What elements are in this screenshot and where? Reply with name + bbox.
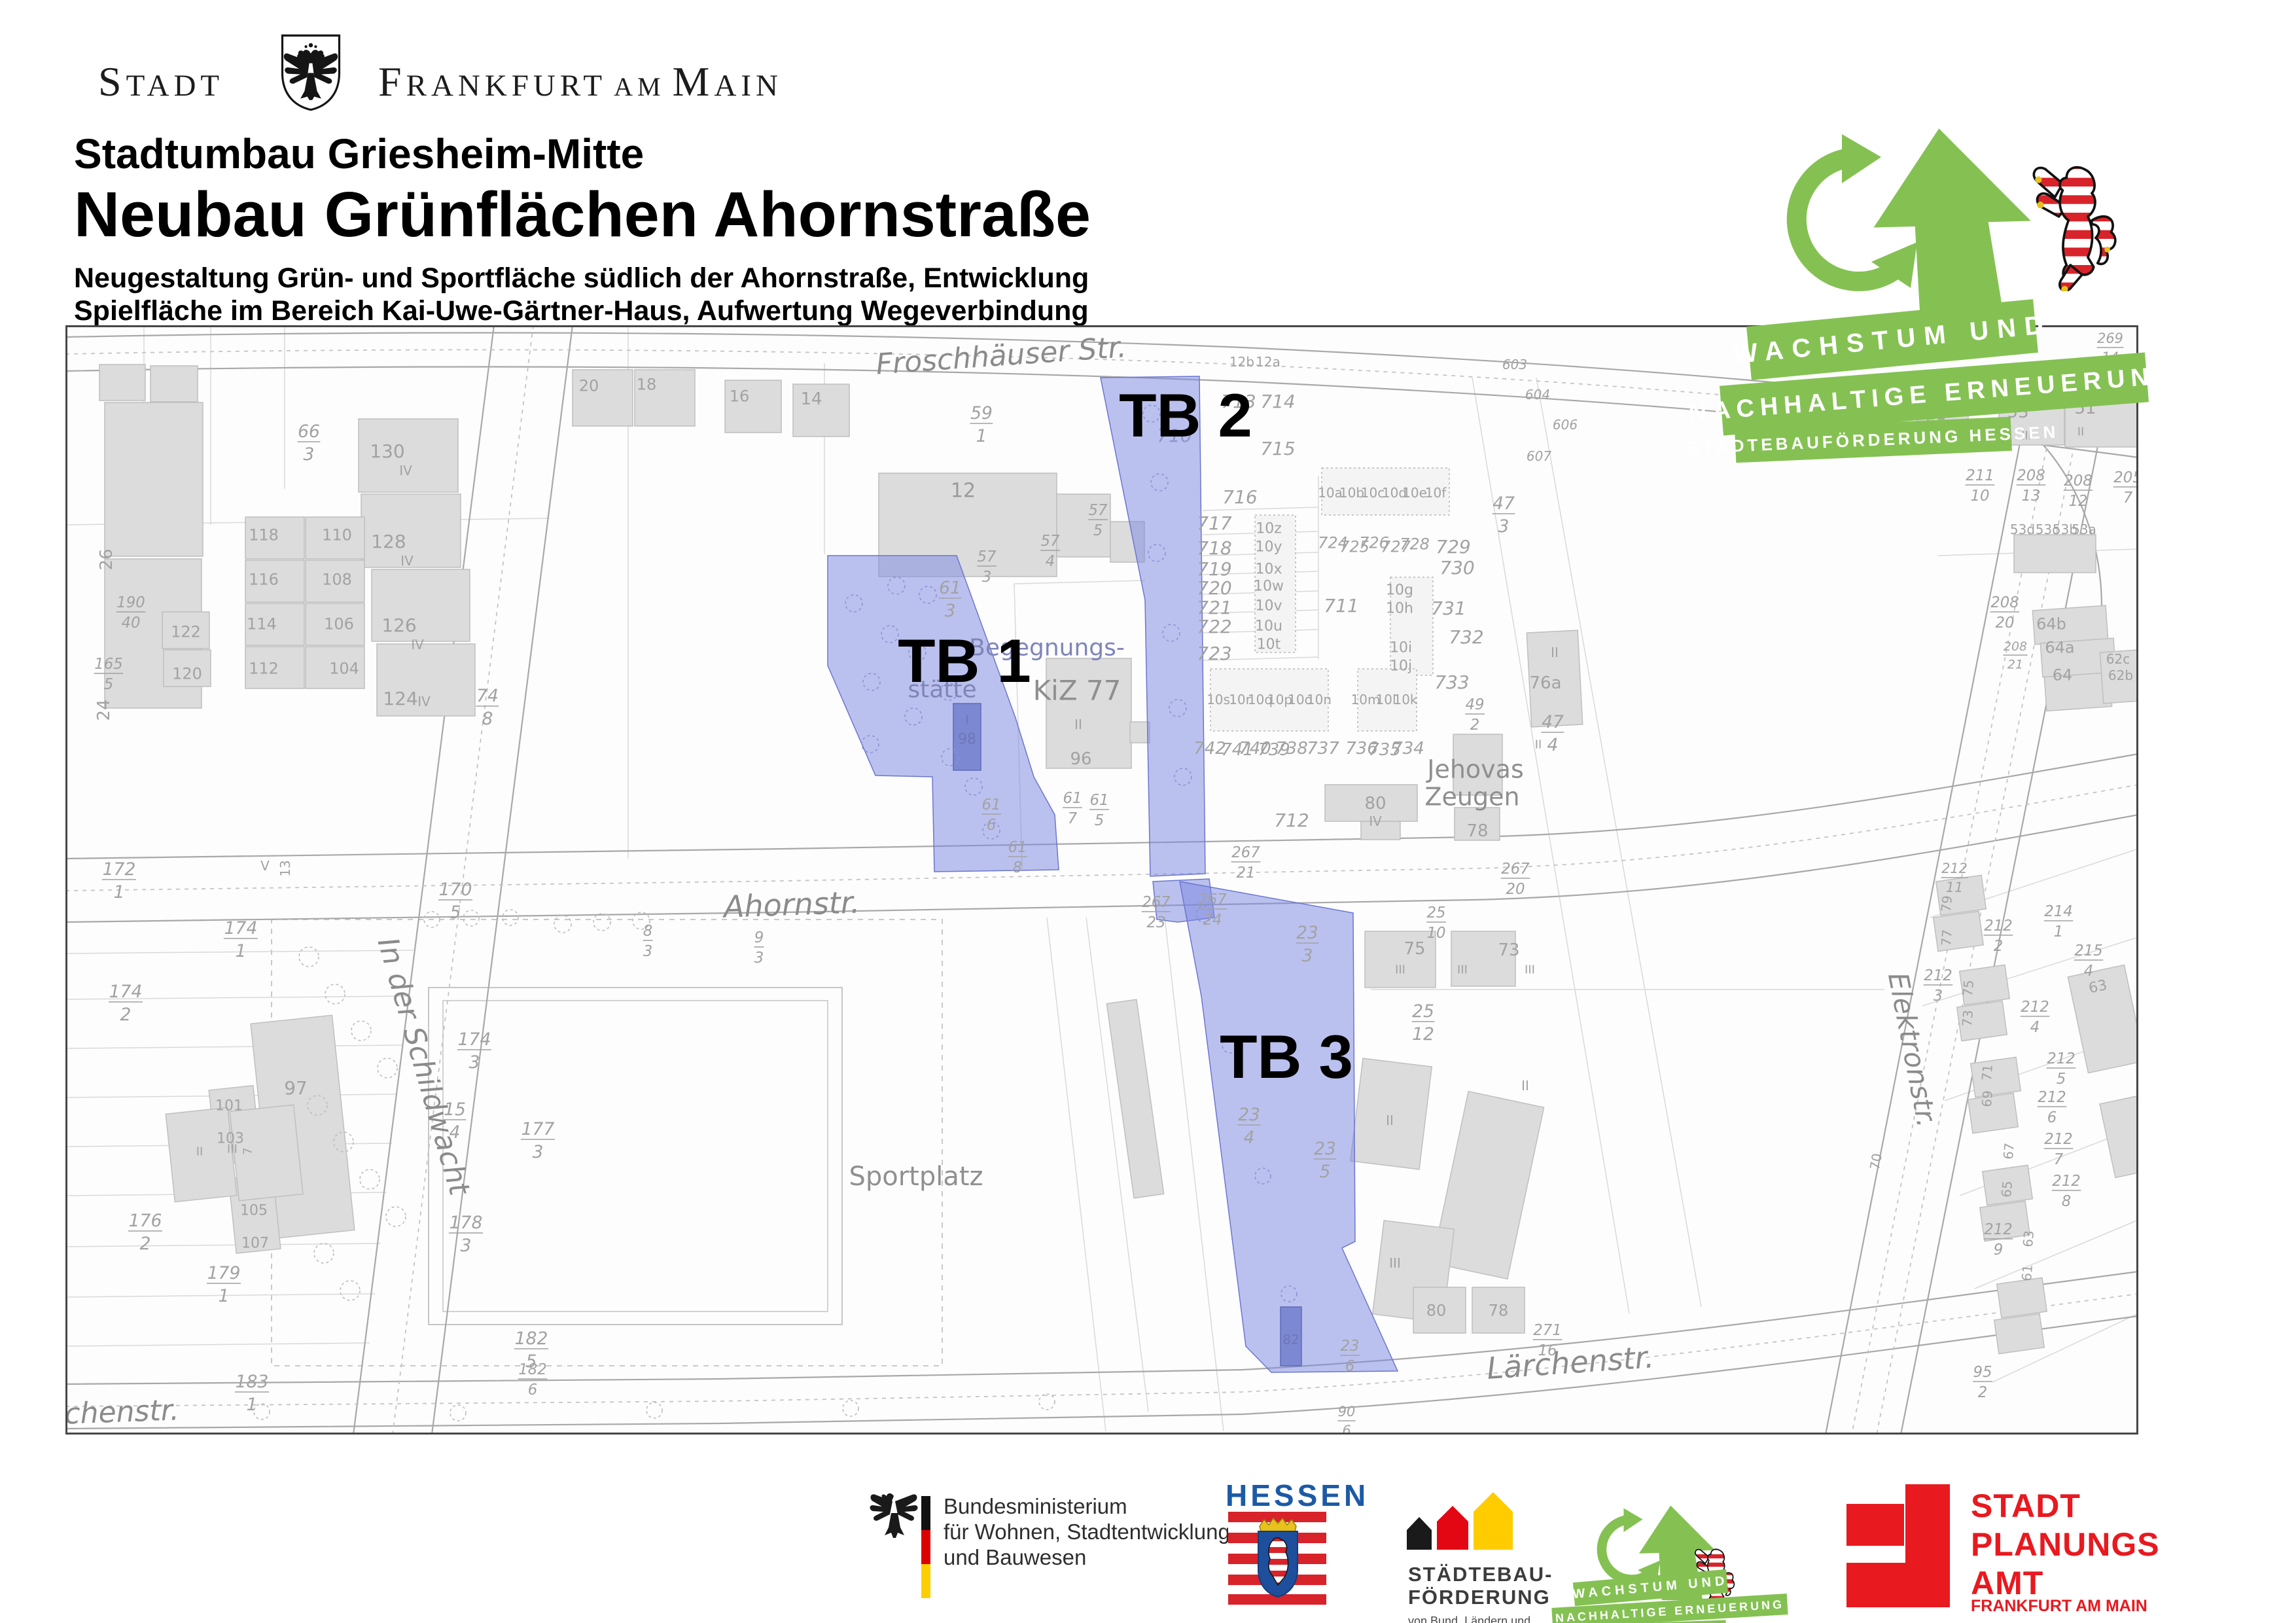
svg-text:3: 3	[982, 569, 992, 586]
svg-text:603: 603	[1502, 357, 1527, 372]
map-label-78: 78	[1489, 1301, 1509, 1319]
svg-text:130: 130	[370, 440, 404, 462]
svg-text:16: 16	[730, 387, 750, 405]
svg-text:717: 717	[1197, 512, 1232, 534]
svg-text:172: 172	[103, 859, 136, 880]
svg-text:IV: IV	[1369, 813, 1382, 829]
svg-text:107: 107	[241, 1236, 269, 1252]
svg-text:4: 4	[1244, 1128, 1255, 1148]
map-label-10i: 10i	[1390, 640, 1412, 656]
svg-text:13: 13	[277, 860, 293, 876]
svg-text:65: 65	[1998, 1180, 2015, 1198]
svg-text:I: I	[965, 713, 968, 726]
svg-text:64b: 64b	[2036, 615, 2066, 633]
map-label-101: 101	[215, 1098, 243, 1115]
svg-text:124: 124	[383, 688, 417, 709]
map-label-III: III	[1457, 963, 1468, 976]
map-label-II: II	[196, 1145, 203, 1158]
svg-text:62c: 62c	[2106, 651, 2130, 667]
bund-line-2: für Wohnen, Stadtentwicklung	[944, 1519, 1230, 1544]
svg-text:178: 178	[450, 1213, 483, 1233]
svg-text:212: 212	[1924, 967, 1952, 984]
svg-text:5: 5	[2057, 1071, 2066, 1088]
svg-text:723: 723	[1197, 643, 1231, 664]
svg-text:61: 61	[1063, 790, 1082, 807]
map-label-10w: 10w	[1254, 579, 1284, 595]
svg-text:2: 2	[1470, 717, 1480, 734]
svg-text:10f: 10f	[1425, 485, 1447, 501]
svg-text:7: 7	[1068, 810, 1078, 827]
svg-text:6: 6	[987, 817, 997, 834]
staedtebau-line-1: STÄDTEBAU-	[1408, 1563, 1553, 1586]
map-label-96: 96	[1070, 749, 1091, 769]
svg-text:73: 73	[1959, 1009, 1976, 1027]
svg-text:II: II	[1551, 645, 1559, 660]
svg-text:10k: 10k	[1393, 692, 1417, 707]
svg-text:III: III	[227, 1142, 238, 1156]
page-title: Neubau Grünflächen Ahornstraße	[74, 178, 1091, 251]
svg-text:271: 271	[1533, 1322, 1562, 1339]
map-label-10v: 10v	[1255, 598, 1282, 615]
svg-text:718: 718	[1197, 537, 1231, 559]
map-label-12b: 12b	[1229, 354, 1254, 370]
map-label-716: 716	[1222, 486, 1257, 508]
map-label-128: 128	[371, 531, 406, 552]
svg-text:66: 66	[298, 421, 320, 442]
map-label-Ahornstr-: Ahornstr.	[721, 884, 860, 924]
svg-text:4: 4	[2084, 963, 2094, 980]
subtitle-line-2: Spielfläche im Bereich Kai-Uwe-Gärtner-H…	[74, 294, 1089, 327]
svg-text:122: 122	[171, 622, 201, 641]
svg-text:80: 80	[1426, 1301, 1447, 1319]
svg-text:3: 3	[754, 950, 764, 967]
svg-text:8: 8	[643, 923, 653, 940]
map-label-12: 12	[951, 480, 976, 503]
svg-text:12: 12	[2068, 493, 2087, 510]
svg-text:7: 7	[2123, 490, 2133, 507]
svg-text:12: 12	[951, 480, 976, 503]
svg-text:716: 716	[1222, 486, 1257, 508]
bundesadler-icon	[869, 1487, 919, 1542]
map-label-II: II	[1386, 1113, 1394, 1128]
svg-text:13: 13	[2021, 488, 2040, 505]
svg-text:165: 165	[94, 656, 123, 673]
svg-text:40: 40	[121, 615, 140, 632]
map-label-79: 79	[1938, 895, 1955, 912]
svg-text:III: III	[1457, 963, 1468, 976]
svg-text:190: 190	[116, 594, 145, 611]
svg-text:69: 69	[1979, 1090, 1996, 1107]
hessen-lion-icon	[2025, 160, 2143, 291]
map-label-IV: IV	[399, 463, 412, 478]
svg-text:10w: 10w	[1254, 579, 1284, 595]
svg-text:604: 604	[1525, 387, 1550, 402]
map-label-10f: 10f	[1425, 485, 1447, 501]
map-label-80: 80	[1426, 1301, 1447, 1319]
svg-text:12b: 12b	[1229, 354, 1254, 370]
map-label-738: 738	[1275, 739, 1308, 758]
map-label-116: 116	[249, 570, 279, 588]
map-label-KiZ-77: KiZ 77	[1033, 675, 1122, 707]
map-label-734: 734	[1392, 739, 1424, 758]
flag-bar-black	[921, 1496, 930, 1530]
bund-line-3: und Bauwesen	[944, 1544, 1230, 1570]
map-label-10e: 10e	[1402, 485, 1427, 501]
map-label-20: 20	[579, 376, 599, 395]
svg-text:1: 1	[976, 426, 987, 446]
svg-text:208: 208	[2004, 639, 2027, 654]
svg-text:8: 8	[2062, 1193, 2072, 1210]
svg-text:1: 1	[247, 1395, 258, 1415]
map-label-603: 603	[1502, 357, 1527, 372]
spa-line-1: STADT	[1971, 1487, 2160, 1525]
svg-text:120: 120	[172, 664, 202, 683]
map-label-729: 729	[1436, 536, 1470, 558]
svg-text:1: 1	[219, 1286, 230, 1306]
map-label-III: III	[1395, 963, 1405, 976]
svg-text:269: 269	[2097, 330, 2123, 346]
svg-text:Jehovas: Jehovas	[1426, 755, 1524, 783]
map-label-107: 107	[241, 1236, 269, 1252]
svg-text:212: 212	[1941, 861, 1968, 876]
svg-text:212: 212	[2047, 1050, 2075, 1067]
svg-text:II: II	[1535, 738, 1542, 751]
svg-text:1: 1	[236, 941, 247, 961]
svg-text:97: 97	[284, 1077, 308, 1099]
svg-text:214: 214	[2044, 903, 2073, 920]
svg-text:76a: 76a	[1529, 673, 1561, 693]
svg-text:738: 738	[1275, 739, 1308, 758]
map-label-II: II	[1074, 717, 1082, 732]
map-label-10h: 10h	[1386, 601, 1413, 617]
svg-text:4: 4	[450, 1122, 461, 1143]
site-plan-map: Froschhäuser Str.Ahornstr.Lärchenstr.che…	[65, 325, 2138, 1435]
svg-text:14: 14	[800, 389, 822, 409]
map-label-II: II	[2077, 425, 2085, 438]
svg-text:23: 23	[1340, 1338, 1359, 1355]
svg-text:12a: 12a	[1256, 354, 1280, 370]
svg-text:23: 23	[1146, 914, 1165, 931]
svg-text:212: 212	[2044, 1131, 2073, 1148]
svg-text:10j: 10j	[1390, 658, 1412, 675]
svg-text:10v: 10v	[1255, 598, 1282, 615]
map-label-Sportplatz: Sportplatz	[849, 1162, 983, 1192]
map-label-712: 712	[1274, 810, 1309, 831]
map-label-13: 13	[277, 860, 293, 876]
map-label-604: 604	[1525, 387, 1550, 402]
svg-text:174: 174	[109, 982, 143, 1002]
svg-text:15: 15	[444, 1099, 466, 1120]
map-label-730: 730	[1439, 557, 1474, 579]
svg-text:176: 176	[129, 1211, 162, 1231]
svg-text:2: 2	[140, 1234, 151, 1254]
map-label-69: 69	[1979, 1090, 1996, 1107]
map-label-10s: 10s	[1207, 692, 1230, 707]
map-label-64: 64	[2053, 666, 2073, 684]
svg-text:212: 212	[1984, 918, 2013, 935]
map-label-97: 97	[284, 1077, 308, 1099]
hessen-shield-icon	[1258, 1518, 1298, 1597]
svg-text:183: 183	[236, 1372, 269, 1392]
staedtebau-sub-1: von Bund, Ländern und	[1408, 1614, 1530, 1623]
svg-text:110: 110	[322, 526, 352, 544]
svg-text:10u: 10u	[1255, 618, 1282, 635]
svg-text:64: 64	[2053, 666, 2073, 684]
svg-text:20: 20	[579, 376, 599, 395]
svg-text:II: II	[1074, 717, 1082, 732]
map-label-10c: 10c	[1361, 485, 1385, 501]
svg-text:10h: 10h	[1386, 601, 1413, 617]
svg-text:IV: IV	[411, 637, 424, 652]
svg-text:21: 21	[2007, 657, 2023, 671]
svg-text:9: 9	[1994, 1241, 2004, 1258]
bund-line-1: Bundesministerium	[944, 1493, 1230, 1519]
map-label-II: II	[1521, 1078, 1529, 1094]
svg-text:25: 25	[1412, 1001, 1434, 1022]
map-label-IV: IV	[417, 694, 431, 709]
svg-text:118: 118	[249, 526, 279, 544]
svg-text:6: 6	[1345, 1358, 1355, 1375]
map-label-Zeugen: Zeugen	[1424, 782, 1519, 811]
svg-text:3: 3	[643, 943, 653, 960]
svg-text:61: 61	[2019, 1264, 2036, 1281]
svg-text:61: 61	[939, 578, 961, 598]
svg-text:26: 26	[97, 548, 116, 570]
svg-text:714: 714	[1260, 391, 1295, 412]
map-label-24: 24	[94, 699, 114, 721]
map-label-IV: IV	[1369, 813, 1382, 829]
map-label-606: 606	[1553, 417, 1578, 433]
svg-text:2: 2	[1978, 1384, 1988, 1401]
map-label-108: 108	[322, 570, 352, 588]
svg-text:5: 5	[104, 676, 114, 693]
svg-text:3: 3	[461, 1236, 472, 1256]
svg-text:II: II	[1386, 1113, 1394, 1128]
svg-text:KiZ 77: KiZ 77	[1033, 675, 1122, 707]
spa-line-2: PLANUNGS	[1971, 1525, 2160, 1564]
svg-text:105: 105	[240, 1203, 268, 1219]
map-label-82: 82	[1282, 1332, 1299, 1347]
svg-text:II: II	[1521, 1078, 1529, 1094]
svg-text:737: 737	[1307, 739, 1339, 758]
map-label-728: 728	[1400, 535, 1430, 553]
svg-text:Sportplatz: Sportplatz	[849, 1162, 983, 1192]
svg-text:108: 108	[322, 570, 352, 588]
svg-text:90: 90	[1338, 1404, 1356, 1419]
svg-text:2: 2	[1994, 938, 2004, 955]
svg-text:8: 8	[482, 709, 493, 729]
svg-text:20: 20	[1506, 881, 1525, 898]
stadtplanungsamt-glyph-icon	[1846, 1484, 1951, 1609]
svg-text:III: III	[1395, 963, 1405, 976]
svg-text:61: 61	[1089, 792, 1108, 809]
map-label-III: III	[227, 1142, 238, 1156]
map-label-64a: 64a	[2045, 638, 2074, 656]
svg-text:3: 3	[945, 601, 956, 621]
svg-text:7: 7	[2054, 1151, 2064, 1168]
svg-text:10: 10	[1426, 925, 1445, 942]
map-label-75: 75	[1960, 979, 1977, 997]
svg-text:80: 80	[1364, 794, 1386, 813]
svg-text:10g: 10g	[1386, 582, 1413, 599]
map-label-61: 61	[2019, 1264, 2036, 1281]
map-label-120: 120	[172, 664, 202, 683]
svg-text:729: 729	[1436, 536, 1470, 558]
map-label-731: 731	[1431, 597, 1466, 619]
svg-text:5: 5	[1095, 812, 1104, 829]
svg-text:70: 70	[1867, 1152, 1885, 1171]
svg-text:82: 82	[1282, 1332, 1299, 1347]
svg-text:177: 177	[521, 1119, 555, 1139]
map-label-106: 106	[324, 615, 354, 633]
bund-ministry-text: Bundesministerium für Wohnen, Stadtentwi…	[944, 1493, 1230, 1570]
hessen-logo-text: HESSEN	[1226, 1478, 1369, 1513]
map-label-II: II	[1551, 645, 1559, 660]
map-label-105: 105	[240, 1203, 268, 1219]
map-label-98: 98	[958, 732, 976, 748]
map-label-118: 118	[249, 526, 279, 544]
stadtplanungsamt-title: STADT PLANUNGS AMT	[1971, 1487, 2160, 1603]
svg-text:734: 734	[1392, 739, 1424, 758]
svg-text:74: 74	[476, 686, 499, 706]
svg-text:128: 128	[371, 531, 406, 552]
svg-text:III: III	[1525, 963, 1535, 976]
map-label-65: 65	[1998, 1180, 2015, 1198]
svg-text:116: 116	[249, 570, 279, 588]
svg-text:57: 57	[977, 548, 997, 565]
svg-text:9: 9	[754, 929, 764, 946]
svg-text:IV: IV	[400, 553, 414, 569]
svg-text:57: 57	[1040, 533, 1060, 550]
svg-text:3: 3	[1498, 516, 1510, 537]
svg-text:61: 61	[1008, 839, 1027, 856]
map-label-Jehovas: Jehovas	[1426, 755, 1524, 783]
svg-text:101: 101	[215, 1098, 243, 1115]
svg-text:728: 728	[1400, 535, 1430, 553]
svg-text:267: 267	[1198, 891, 1227, 908]
hessen-flag-icon	[1228, 1512, 1326, 1605]
map-label-720: 720	[1197, 577, 1231, 599]
map-label-II: II	[1535, 738, 1542, 751]
map-label-722: 722	[1197, 616, 1231, 637]
map-label-V: V	[260, 858, 270, 874]
map-label-110: 110	[322, 526, 352, 544]
svg-text:75: 75	[1404, 939, 1425, 959]
map-label-IV: IV	[400, 553, 414, 569]
map-label-715: 715	[1260, 438, 1295, 459]
map-label-723: 723	[1197, 643, 1231, 664]
svg-text:104: 104	[329, 659, 359, 677]
svg-text:IV: IV	[417, 694, 431, 709]
svg-text:77: 77	[1938, 929, 1955, 946]
svg-text:6: 6	[528, 1382, 538, 1399]
svg-text:720: 720	[1197, 577, 1231, 599]
svg-text:267: 267	[1142, 894, 1171, 911]
svg-text:179: 179	[207, 1263, 241, 1283]
svg-text:3: 3	[533, 1142, 544, 1162]
svg-text:170: 170	[439, 880, 472, 900]
map-label-607: 607	[1527, 448, 1551, 464]
svg-text:10z: 10z	[1256, 521, 1282, 537]
svg-text:78: 78	[1466, 821, 1488, 841]
city-logo-stadt: STADT	[98, 87, 224, 98]
svg-text:12: 12	[1412, 1024, 1434, 1044]
svg-text:3: 3	[1302, 946, 1313, 966]
map-label-71: 71	[1979, 1063, 1996, 1081]
svg-text:711: 711	[1324, 595, 1358, 616]
svg-text:75: 75	[1960, 979, 1977, 997]
svg-text:4: 4	[1547, 735, 1559, 755]
map-label-70: 70	[1867, 1152, 1885, 1171]
svg-text:63: 63	[2020, 1230, 2037, 1247]
map-label-737: 737	[1307, 739, 1339, 758]
poster-page: STADT FRANKFURT AM MAIN Stadtumbau Gries…	[0, 0, 2296, 1623]
svg-text:182: 182	[518, 1361, 547, 1378]
map-label-64b: 64b	[2036, 615, 2066, 633]
map-label-718: 718	[1197, 537, 1231, 559]
svg-text:23: 23	[1238, 1105, 1260, 1125]
svg-text:211: 211	[1966, 467, 1994, 484]
svg-text:57: 57	[1088, 502, 1108, 519]
map-label-732: 732	[1449, 626, 1483, 648]
svg-text:10x: 10x	[1255, 562, 1282, 578]
svg-text:208: 208	[1990, 594, 2019, 611]
map-label-126: 126	[381, 615, 416, 636]
svg-text:11: 11	[1946, 880, 1964, 895]
svg-text:212: 212	[1984, 1221, 2013, 1238]
map-label-10y: 10y	[1255, 539, 1282, 556]
svg-text:208: 208	[2017, 467, 2045, 484]
svg-text:3: 3	[304, 444, 315, 465]
map-label-10z: 10z	[1256, 521, 1282, 537]
svg-text:215: 215	[2074, 942, 2103, 959]
svg-text:10y: 10y	[1255, 539, 1282, 556]
map-label-IV: IV	[411, 637, 424, 652]
svg-text:23: 23	[1296, 923, 1318, 943]
map-label-122: 122	[171, 622, 201, 641]
map-label-77: 77	[1938, 929, 1955, 946]
map-label-114: 114	[247, 615, 277, 633]
svg-text:IV: IV	[399, 463, 412, 478]
svg-text:10t: 10t	[1257, 637, 1281, 653]
svg-text:95: 95	[1973, 1364, 1992, 1381]
tb-1-label: TB 1	[898, 626, 1031, 695]
svg-text:10n: 10n	[1307, 692, 1332, 707]
map-label-chenstr-: chenstr.	[65, 1393, 179, 1431]
flag-bar-gold	[921, 1564, 930, 1598]
svg-text:chenstr.: chenstr.	[65, 1393, 179, 1431]
map-label-10j: 10j	[1390, 658, 1412, 675]
map-label-10g: 10g	[1386, 582, 1413, 599]
svg-text:267: 267	[1501, 861, 1530, 878]
svg-text:4: 4	[2030, 1019, 2040, 1036]
svg-text:98: 98	[958, 732, 976, 748]
frankfurt-eagle-shield-icon	[278, 33, 344, 113]
svg-text:174: 174	[224, 918, 258, 938]
svg-text:126: 126	[381, 615, 416, 636]
svg-text:731: 731	[1431, 597, 1466, 619]
map-label-10t: 10t	[1257, 637, 1281, 653]
svg-text:67: 67	[2000, 1142, 2017, 1160]
svg-text:182: 182	[515, 1329, 548, 1349]
flag-bar-red	[921, 1530, 930, 1564]
svg-text:606: 606	[1553, 417, 1578, 433]
svg-text:10: 10	[1970, 488, 1989, 505]
svg-text:607: 607	[1527, 448, 1551, 464]
map-label-62c: 62c	[2106, 651, 2130, 667]
stadtplanungsamt-sub: FRANKFURT AM MAIN	[1971, 1597, 2147, 1616]
svg-text:212: 212	[2021, 999, 2049, 1016]
